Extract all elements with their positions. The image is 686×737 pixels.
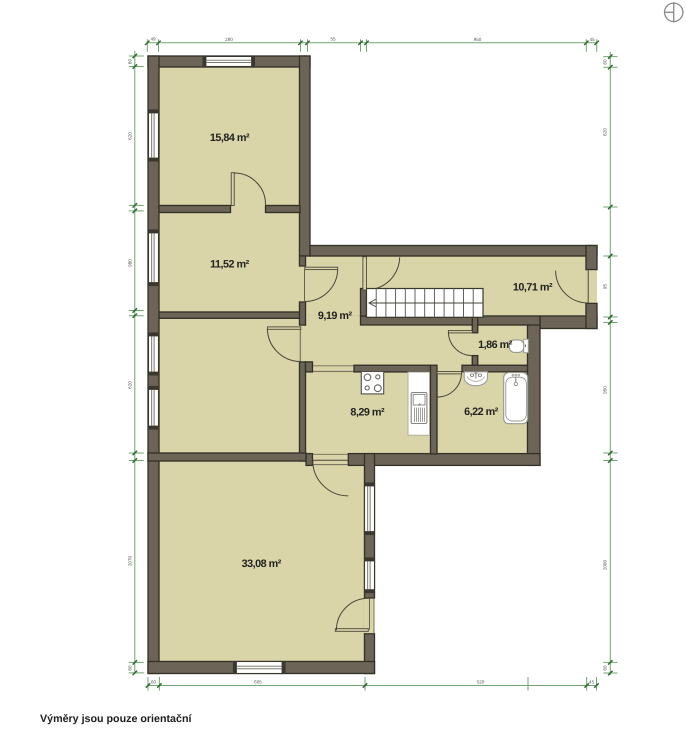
svg-text:8,29 m²: 8,29 m² <box>350 407 385 419</box>
svg-text:60: 60 <box>151 680 157 685</box>
svg-text:1,86 m²: 1,86 m² <box>478 339 513 351</box>
svg-text:60: 60 <box>602 59 607 65</box>
svg-text:60: 60 <box>127 59 132 65</box>
svg-text:950: 950 <box>474 37 482 42</box>
svg-text:950: 950 <box>602 386 607 394</box>
svg-text:Výměry jsou pouze orientační: Výměry jsou pouze orientační <box>40 713 192 725</box>
svg-text:55: 55 <box>330 37 336 42</box>
svg-text:980: 980 <box>127 259 132 267</box>
svg-text:10,71 m²: 10,71 m² <box>513 282 553 294</box>
svg-text:60: 60 <box>127 665 132 671</box>
svg-text:620: 620 <box>127 381 132 389</box>
svg-text:605: 605 <box>254 680 262 685</box>
svg-text:45: 45 <box>589 680 595 685</box>
svg-text:60: 60 <box>602 665 607 671</box>
svg-text:280: 280 <box>225 37 233 42</box>
svg-text:11,52 m²: 11,52 m² <box>210 259 250 271</box>
svg-text:95: 95 <box>602 284 607 290</box>
svg-text:15,84 m²: 15,84 m² <box>210 132 250 144</box>
svg-text:620: 620 <box>602 128 607 136</box>
svg-text:45: 45 <box>589 37 595 42</box>
svg-text:49: 49 <box>150 37 156 42</box>
svg-text:33,08 m²: 33,08 m² <box>242 558 282 570</box>
svg-text:620: 620 <box>127 132 132 140</box>
svg-text:9,19 m²: 9,19 m² <box>318 310 353 322</box>
svg-text:2070: 2070 <box>127 555 132 566</box>
svg-text:2080: 2080 <box>602 559 607 570</box>
svg-text:6,22 m²: 6,22 m² <box>464 406 499 418</box>
svg-text:520: 520 <box>477 680 485 685</box>
